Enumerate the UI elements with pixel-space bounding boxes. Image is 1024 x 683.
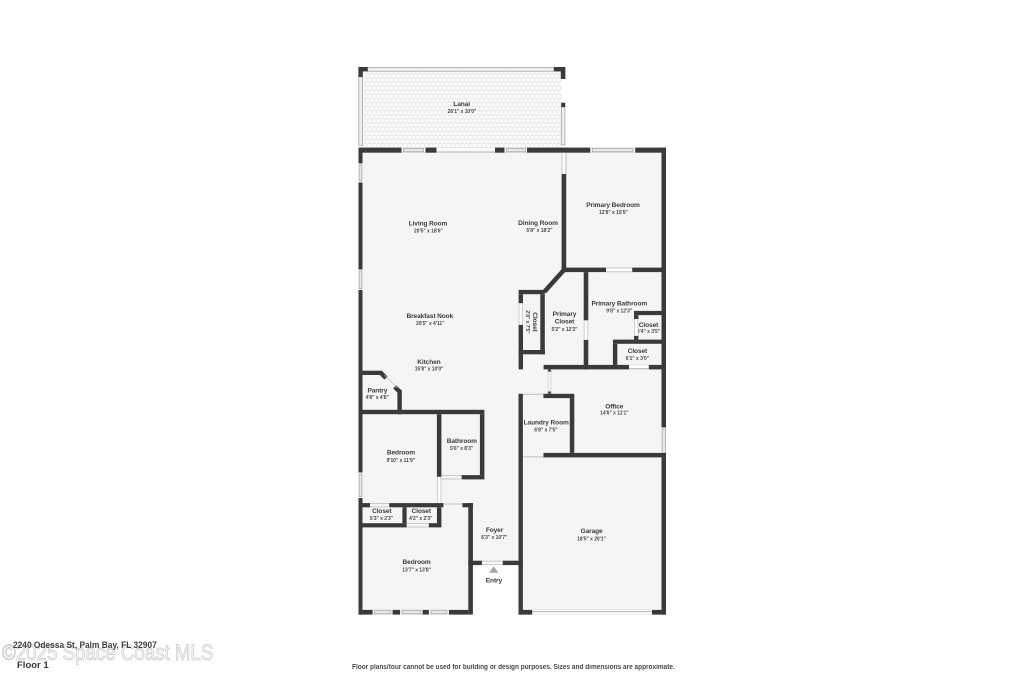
svg-text:Bedroom: Bedroom xyxy=(387,450,415,457)
svg-text:Primary: Primary xyxy=(553,311,577,318)
svg-text:2'8" x 7'5": 2'8" x 7'5" xyxy=(524,310,530,334)
svg-text:Closet: Closet xyxy=(639,322,659,329)
svg-text:5'8" x 18'2": 5'8" x 18'2" xyxy=(526,228,553,234)
svg-text:5'2" x 12'3": 5'2" x 12'3" xyxy=(552,327,579,333)
svg-text:Closet: Closet xyxy=(531,312,538,332)
svg-text:12'8" x 15'5": 12'8" x 15'5" xyxy=(599,210,628,216)
svg-text:Bedroom: Bedroom xyxy=(403,559,431,566)
svg-text:20'5" x 18'6": 20'5" x 18'6" xyxy=(414,228,443,234)
svg-text:Primary Bathroom: Primary Bathroom xyxy=(591,301,647,308)
svg-text:Laundry Room: Laundry Room xyxy=(524,419,569,426)
svg-text:20'5" x 4'11": 20'5" x 4'11" xyxy=(416,321,445,327)
svg-text:Garage: Garage xyxy=(581,528,603,535)
svg-text:9'10" x 11'9": 9'10" x 11'9" xyxy=(387,458,416,464)
svg-text:Bathroom: Bathroom xyxy=(447,438,477,445)
svg-text:Closet: Closet xyxy=(411,508,431,515)
svg-text:Primary Bedroom: Primary Bedroom xyxy=(586,202,640,209)
svg-text:Closet: Closet xyxy=(372,508,392,515)
svg-text:Closet: Closet xyxy=(555,319,575,326)
svg-text:5'6" x 8'3": 5'6" x 8'3" xyxy=(450,446,474,452)
svg-text:6'1" x 3'0": 6'1" x 3'0" xyxy=(626,356,650,362)
svg-text:15'8" x 10'0": 15'8" x 10'0" xyxy=(415,366,444,372)
svg-text:14'6" x 11'1": 14'6" x 11'1" xyxy=(600,411,629,417)
svg-text:Office: Office xyxy=(605,403,623,410)
svg-text:Closet: Closet xyxy=(628,348,648,355)
svg-text:9'8" x 12'3": 9'8" x 12'3" xyxy=(606,308,633,314)
svg-text:13'7" x 13'8": 13'7" x 13'8" xyxy=(402,568,431,574)
svg-text:6'8" x 7'5": 6'8" x 7'5" xyxy=(534,427,558,433)
svg-text:Foyer: Foyer xyxy=(486,527,504,534)
svg-text:18'5" x 20'1": 18'5" x 20'1" xyxy=(577,536,606,542)
svg-text:Dining Room: Dining Room xyxy=(518,220,558,227)
svg-text:26'1" x 10'0": 26'1" x 10'0" xyxy=(448,109,477,115)
svg-text:Pantry: Pantry xyxy=(367,387,387,394)
svg-text:5'3" x 2'3": 5'3" x 2'3" xyxy=(370,516,394,522)
svg-text:6'3" x 10'7": 6'3" x 10'7" xyxy=(481,535,508,541)
svg-text:Lanai: Lanai xyxy=(453,101,470,108)
svg-text:Breakfast Nook: Breakfast Nook xyxy=(406,313,453,320)
svg-text:Living Room: Living Room xyxy=(409,221,448,228)
svg-text:Kitchen: Kitchen xyxy=(417,359,440,366)
svg-text:4'8" x 4'8": 4'8" x 4'8" xyxy=(366,395,390,401)
svg-text:3'4" x 3'5": 3'4" x 3'5" xyxy=(637,329,661,335)
svg-text:4'2" x 2'3": 4'2" x 2'3" xyxy=(409,516,433,522)
svg-text:Entry: Entry xyxy=(486,578,503,585)
